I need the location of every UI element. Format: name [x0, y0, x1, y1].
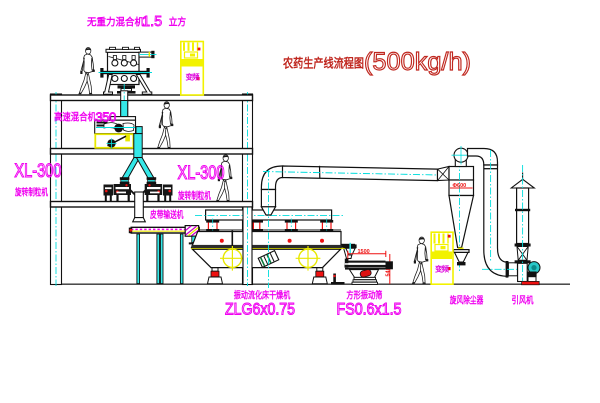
svg-text:FS0.6x1.5: FS0.6x1.5: [337, 301, 402, 319]
svg-text:ZLG6x0.75: ZLG6x0.75: [225, 301, 295, 319]
svg-text:旋转制粒机: 旋转制粒机: [14, 187, 48, 199]
svg-text:立方: 立方: [169, 16, 187, 29]
svg-text:旋风除尘器: 旋风除尘器: [449, 295, 484, 307]
svg-text:Φ600: Φ600: [453, 183, 467, 189]
svg-text:(500kg/h): (500kg/h): [364, 48, 471, 76]
svg-text:变频: 变频: [186, 72, 200, 82]
svg-text:XL-300: XL-300: [178, 162, 225, 184]
svg-text:农药生产线流程图: 农药生产线流程图: [282, 56, 364, 71]
svg-text:350: 350: [96, 110, 116, 125]
svg-text:皮带输送机: 皮带输送机: [149, 209, 184, 221]
svg-text:1500: 1500: [358, 249, 370, 255]
svg-text:变频: 变频: [435, 264, 449, 274]
svg-text:高速混合机: 高速混合机: [54, 111, 96, 124]
svg-text:旋转制粒机: 旋转制粒机: [177, 190, 211, 202]
svg-text:引风机: 引风机: [512, 295, 534, 307]
svg-text:XL-300: XL-300: [14, 160, 61, 182]
svg-text:1.5: 1.5: [142, 14, 162, 30]
svg-text:无重力混合机: 无重力混合机: [86, 16, 144, 29]
